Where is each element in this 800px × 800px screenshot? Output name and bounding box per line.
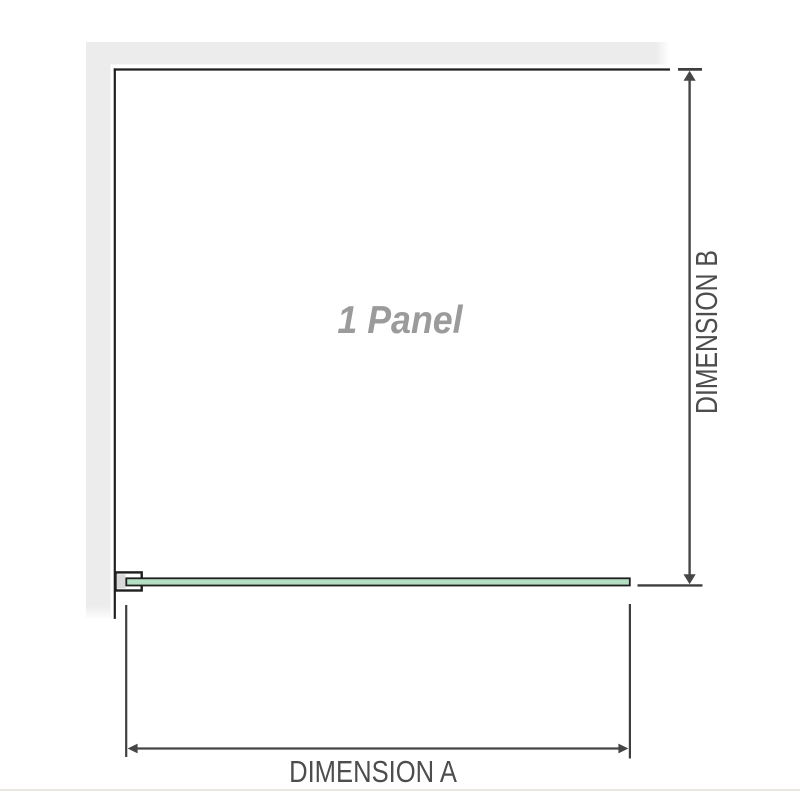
svg-text:1 Panel: 1 Panel [337, 298, 464, 342]
svg-text:DIMENSION B: DIMENSION B [689, 250, 723, 414]
svg-text:DIMENSION A: DIMENSION A [289, 755, 457, 790]
